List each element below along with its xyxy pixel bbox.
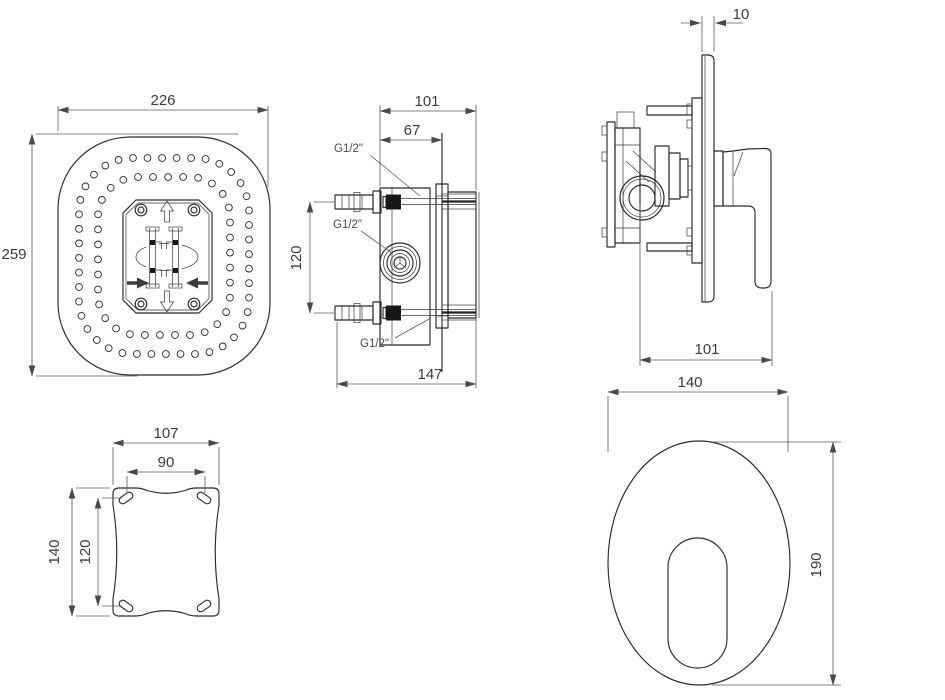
- dim-slot-spacing-vertical: 120: [77, 498, 122, 606]
- arrow-left-icon: [186, 278, 208, 289]
- nozzle-hole: [119, 350, 126, 357]
- trim-plate-outline: [608, 441, 790, 685]
- dim-slot-spacing-horizontal: 90: [127, 454, 205, 493]
- dim-label-10: 10: [733, 6, 750, 23]
- nozzle-hole: [246, 207, 253, 214]
- nozzle-hole: [76, 255, 83, 262]
- nozzle-hole: [246, 251, 253, 258]
- dim-trim-plate-height: 190: [712, 442, 841, 685]
- nozzle-hole: [84, 326, 91, 333]
- valve-rough-in-section-view: 101 67 120 147 G1/2" G1/2" G1/2": [288, 93, 479, 388]
- dim-label-140-plate-height: 140: [46, 539, 63, 564]
- nozzle-hole: [134, 351, 141, 358]
- nozzle-hole: [195, 174, 202, 181]
- nozzle-hole: [223, 309, 230, 316]
- nozzle-hole: [95, 241, 102, 248]
- nozzle-hole: [246, 236, 253, 243]
- nozzle-hole: [144, 155, 151, 162]
- nozzle-hole: [173, 155, 180, 162]
- nozzle-hole: [148, 351, 155, 358]
- nozzle-hole: [95, 271, 102, 278]
- nozzle-hole: [216, 160, 223, 167]
- port-label-center: G1/2": [333, 219, 362, 231]
- dim-label-120-slots: 120: [77, 539, 94, 564]
- nozzle-hole: [159, 155, 166, 162]
- nozzle-hole: [78, 312, 85, 319]
- nozzle-hole: [76, 298, 83, 305]
- nozzle-hole: [76, 240, 83, 247]
- nozzle-hole: [107, 184, 114, 191]
- nozzle-hole: [237, 180, 244, 187]
- nozzle-hole: [172, 332, 179, 339]
- dim-shower-head-width: 226: [58, 92, 268, 187]
- nozzle-hole: [126, 331, 133, 338]
- nozzle-hole: [201, 329, 208, 336]
- housing-box: [448, 192, 476, 318]
- nozzle-hole: [95, 256, 102, 263]
- nozzle-hole: [91, 171, 98, 178]
- nozzle-hole: [157, 332, 164, 339]
- nozzle-hole: [227, 249, 234, 256]
- shower-head-outline: [58, 137, 270, 375]
- nozzle-hole: [102, 162, 109, 169]
- nozzle-hole: [150, 174, 157, 181]
- port-label-top: G1/2": [334, 143, 363, 155]
- nozzle-hole: [219, 191, 226, 198]
- nozzle-hole: [113, 325, 120, 332]
- nozzle-hole: [209, 180, 216, 187]
- nozzle-hole: [82, 183, 89, 190]
- dim-label-101-depth: 101: [414, 93, 439, 110]
- inlet-fitting-top: [335, 191, 476, 213]
- dim-valve-total-depth: 147: [337, 320, 476, 388]
- nozzle-hole: [231, 334, 238, 341]
- nozzle-hole: [177, 351, 184, 358]
- nozzle-hole: [239, 322, 246, 329]
- trim-plate-front-view: 140 190: [608, 374, 841, 685]
- nozzle-hole: [227, 294, 234, 301]
- nozzle-hole: [130, 155, 137, 162]
- dim-label-190: 190: [808, 552, 825, 577]
- nozzle-hole: [246, 294, 253, 301]
- inlet-fitting-bottom: [335, 302, 476, 324]
- nozzle-hole: [95, 286, 102, 293]
- mixer-side-view: 10: [602, 6, 772, 366]
- nozzle-hole: [228, 169, 235, 176]
- nozzle-hole: [142, 332, 149, 339]
- mixer-technical-drawing: 226 259: [0, 0, 945, 700]
- nozzle-hole: [227, 264, 234, 271]
- waterway-ellipse: [136, 244, 198, 271]
- dim-label-147: 147: [417, 366, 442, 383]
- nozzle-hole: [202, 156, 209, 163]
- dim-plate-thickness: 10: [681, 6, 749, 52]
- bracket-screw-holes: [135, 204, 200, 310]
- nozzle-hole: [96, 301, 103, 308]
- dim-valve-depth-to-wall: 67: [380, 122, 442, 140]
- nozzle-hole: [243, 193, 250, 200]
- nozzle-hole: [180, 174, 187, 181]
- nozzle-hole: [76, 211, 83, 218]
- nozzle-hole: [246, 222, 253, 229]
- nozzle-hole: [227, 219, 234, 226]
- nozzle-hole: [227, 234, 234, 241]
- nozzle-hole: [76, 284, 83, 291]
- valve-outlet-circle: [620, 176, 664, 220]
- ceiling-bracket: [123, 200, 212, 313]
- nozzle-hole: [76, 269, 83, 276]
- slide-rail-left: [146, 227, 162, 288]
- nozzle-hole: [102, 315, 109, 322]
- nozzle-hole: [187, 332, 194, 339]
- nozzle-hole: [206, 349, 213, 356]
- nozzle-hole: [163, 351, 170, 358]
- dim-shower-head-height: 259: [1, 134, 238, 376]
- arrow-down-icon: [161, 291, 174, 312]
- nozzle-hole: [188, 155, 195, 162]
- dim-label-90: 90: [158, 454, 175, 471]
- nozzle-hole: [99, 197, 106, 204]
- nozzle-hole: [246, 280, 253, 287]
- dim-inlet-spacing: 120: [288, 202, 334, 313]
- nozzle-hole: [77, 197, 84, 204]
- nozzle-hole: [135, 174, 142, 181]
- nozzle-hole: [115, 157, 122, 164]
- shower-head-plan-view: 226 259: [1, 92, 270, 376]
- nozzle-hole: [226, 204, 233, 211]
- nozzle-hole: [219, 343, 226, 350]
- port-callout-center: G1/2": [333, 219, 392, 253]
- nozzle-hole: [214, 321, 221, 328]
- handle-cutout: [668, 538, 727, 668]
- mixer-handle: [723, 149, 771, 289]
- nozzle-hole: [244, 309, 251, 316]
- arrow-up-icon: [161, 201, 174, 222]
- dim-label-120-inlets: 120: [288, 245, 305, 270]
- dim-label-259: 259: [1, 246, 26, 263]
- nozzle-hole-rings: [76, 155, 253, 358]
- nozzle-hole: [76, 226, 83, 233]
- nozzle-hole: [95, 211, 102, 218]
- port-label-bottom: G1/2": [360, 338, 389, 350]
- nozzle-hole: [192, 351, 199, 358]
- dim-label-226: 226: [150, 92, 175, 109]
- nozzle-hole: [227, 279, 234, 286]
- concealed-valve-assembly: [602, 112, 692, 247]
- nozzle-hole: [95, 226, 102, 233]
- mounting-plate-outline: [113, 488, 219, 616]
- nozzle-hole: [105, 345, 112, 352]
- dim-handle-reach: 101: [640, 204, 772, 366]
- dim-label-101-reach: 101: [694, 341, 719, 358]
- mounting-slots: [118, 491, 212, 613]
- dim-trim-plate-width: 140: [608, 374, 788, 452]
- dim-label-67: 67: [404, 122, 421, 139]
- nozzle-hole: [165, 174, 172, 181]
- nozzle-hole: [246, 265, 253, 272]
- technical-drawing-sheet: 226 259: [0, 0, 945, 700]
- mounting-plate-view: 107 90 140 120: [46, 425, 219, 616]
- trim-plate-edge: [702, 55, 714, 302]
- nozzle-hole: [120, 176, 127, 183]
- dim-label-107: 107: [153, 425, 178, 442]
- handle-escutcheon: [714, 151, 723, 206]
- nozzle-hole: [93, 337, 100, 344]
- dim-label-140-plate: 140: [677, 374, 702, 391]
- slide-rail-right: [167, 227, 183, 288]
